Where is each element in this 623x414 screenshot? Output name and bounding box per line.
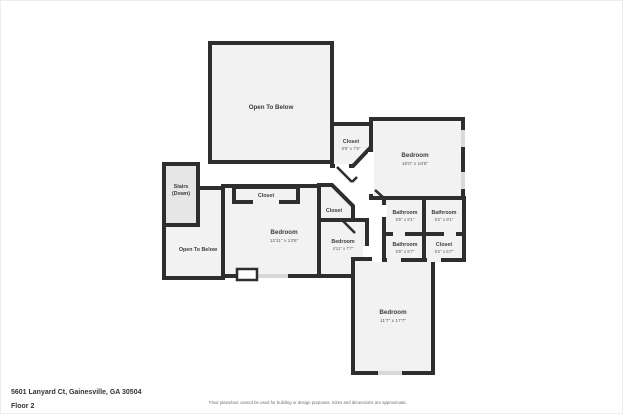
address-text: 5601 Lanyard Ct, Gainesville, GA 30504 [11, 389, 142, 396]
room-dims-label: 5'2" x 9'1" [435, 217, 454, 222]
room-name-label: Open To Below [179, 247, 218, 253]
room-name-label: Bedroom [379, 309, 407, 316]
room-name-label: Open To Below [249, 104, 294, 111]
room-dims-label: 12'11" x 13'6" [270, 238, 299, 244]
wall-bump [237, 269, 257, 280]
room-bedroom-right: Bedroom 16'0" x 18'8" [368, 119, 465, 198]
room-name-label: Bedroom [401, 152, 429, 159]
room-open-to-below-top: Open To Below [210, 43, 332, 162]
room-dims-label: 16'0" x 18'8" [402, 161, 429, 167]
floorplan-page: Stairs (Down) Open To Below Open To Belo… [0, 0, 623, 414]
door-opening [444, 232, 456, 237]
room-bedroom-bottom: Bedroom 11'7" x 17'7" [353, 256, 433, 375]
room-outline [353, 259, 433, 373]
door-opening [393, 232, 405, 237]
room-dims-label: 5'5" x 9'1" [396, 217, 415, 222]
room-closet-center: Closet [234, 187, 298, 204]
room-name-label: Bathroom [431, 210, 456, 216]
room-name-label: Bedroom [331, 239, 355, 245]
room-dims-label: 11'7" x 17'7" [380, 318, 406, 324]
room-dims-label: 5'9" x 7'6" [342, 146, 361, 151]
floor-label: Floor 2 [11, 403, 34, 410]
room-sub-label: (Down) [172, 191, 190, 197]
window [461, 172, 465, 189]
door-opening [253, 200, 279, 204]
room-name-label: Closet [326, 208, 342, 214]
door-opening [368, 152, 374, 194]
room-closet-top-right: Closet 5'9" x 7'6" [332, 124, 371, 168]
room-outline [332, 124, 371, 166]
door-opening [427, 256, 441, 262]
room-bathroom-b: Bathroom 5'2" x 9'1" [424, 198, 464, 236]
window [257, 274, 288, 278]
room-closet-mid: Closet [319, 185, 354, 222]
room-outline [210, 43, 332, 162]
room-outline [319, 185, 353, 220]
room-dims-label: 5'5" x 5'7" [396, 249, 415, 254]
window [461, 130, 465, 147]
door-opening [382, 205, 387, 217]
room-name-label: Closet [436, 242, 452, 248]
room-name-label: Closet [343, 139, 359, 145]
window [378, 371, 402, 375]
door-opening [387, 256, 401, 262]
room-name-label: Closet [258, 193, 274, 199]
room-name-label: Bathroom [392, 210, 417, 216]
room-dims-label: 5'2" x 5'7" [435, 249, 454, 254]
room-name-label: Stairs [174, 184, 189, 190]
room-name-label: Bedroom [270, 229, 298, 236]
floorplan-drawing: Stairs (Down) Open To Below Open To Belo… [1, 1, 622, 413]
door-swing [337, 167, 352, 182]
room-dims-label: 4'11" x 7'7" [333, 246, 354, 251]
door-stop [352, 177, 357, 182]
room-bathroom-a: Bathroom 5'5" x 9'1" [384, 198, 426, 236]
room-stairs: Stairs (Down) [164, 164, 198, 225]
disclaimer-text: Floor plans/tour cannot be used for buil… [209, 400, 407, 405]
room-name-label: Bathroom [392, 242, 417, 248]
